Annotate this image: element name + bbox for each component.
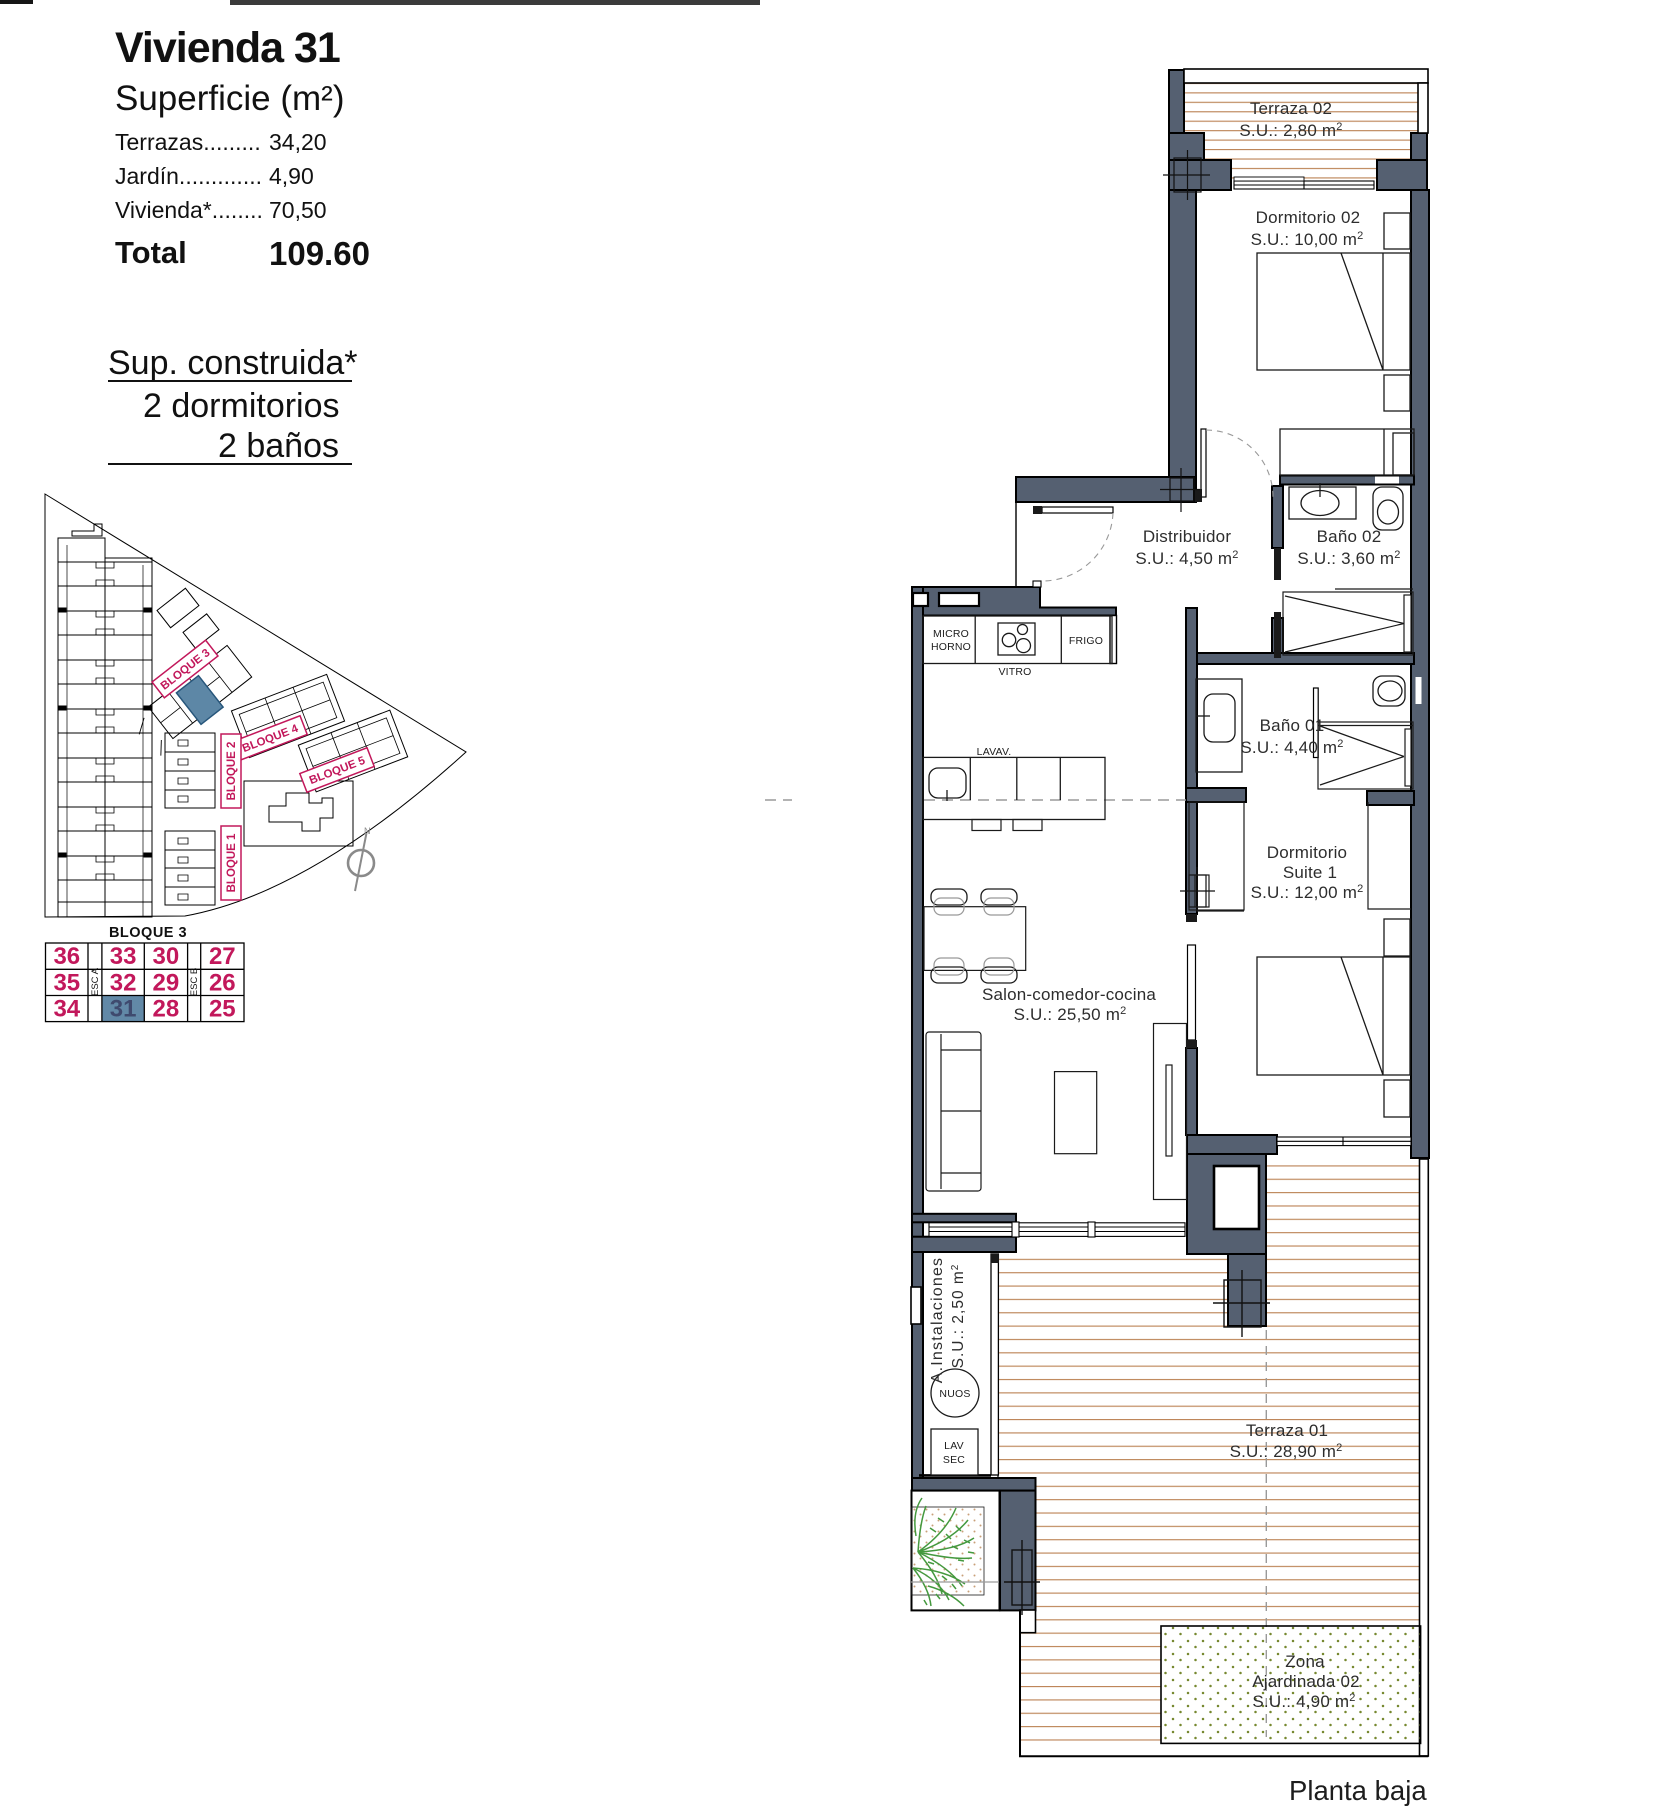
svg-text:Zona: Zona <box>1285 1652 1325 1671</box>
svg-text:Planta baja: Planta baja <box>1289 1775 1427 1806</box>
svg-text:BLOQUE 3: BLOQUE 3 <box>109 925 187 941</box>
svg-text:2 baños: 2 baños <box>218 427 339 465</box>
svg-text:SEC: SEC <box>943 1454 965 1466</box>
svg-text:Baño 02: Baño 02 <box>1317 527 1382 546</box>
svg-text:Distribuidor: Distribuidor <box>1143 527 1232 546</box>
svg-text:BLOQUE 1: BLOQUE 1 <box>226 833 238 892</box>
svg-text:Terrazas.........: Terrazas......... <box>115 129 261 155</box>
svg-text:HORNO: HORNO <box>931 641 971 653</box>
svg-text:NUOS: NUOS <box>939 1388 970 1400</box>
svg-text:70,50: 70,50 <box>269 197 327 223</box>
svg-text:109.60: 109.60 <box>269 235 370 272</box>
svg-text:33: 33 <box>110 943 137 970</box>
svg-text:Terraza 02: Terraza 02 <box>1250 99 1332 118</box>
svg-text:26: 26 <box>209 969 236 996</box>
svg-text:MICRO: MICRO <box>933 628 969 640</box>
svg-text:Baño 01: Baño 01 <box>1260 716 1325 735</box>
svg-text:BLOQUE 2: BLOQUE 2 <box>226 742 238 801</box>
svg-text:34,20: 34,20 <box>269 129 327 155</box>
svg-text:29: 29 <box>153 969 180 996</box>
svg-text:S.U.: 28,90 m2: S.U.: 28,90 m2 <box>1230 1442 1343 1461</box>
svg-text:36: 36 <box>53 943 80 970</box>
svg-text:LAVAV.: LAVAV. <box>977 746 1012 758</box>
svg-text:34: 34 <box>53 996 80 1023</box>
svg-text:32: 32 <box>110 969 137 996</box>
svg-text:30: 30 <box>153 943 180 970</box>
svg-text:S.U.: 25,50 m2: S.U.: 25,50 m2 <box>1014 1005 1127 1024</box>
svg-text:2 dormitorios: 2 dormitorios <box>143 387 340 425</box>
svg-text:28: 28 <box>153 996 180 1023</box>
svg-text:FRIGO: FRIGO <box>1069 635 1103 647</box>
svg-text:S.U.: 4,40 m2: S.U.: 4,40 m2 <box>1240 738 1343 757</box>
svg-text:VITRO: VITRO <box>998 666 1031 678</box>
svg-text:Vivienda*........: Vivienda*........ <box>115 197 263 223</box>
svg-text:S.U.: 2,80 m2: S.U.: 2,80 m2 <box>1239 121 1342 140</box>
svg-text:ESC A: ESC A <box>90 967 101 996</box>
svg-text:Dormitorio 02: Dormitorio 02 <box>1256 208 1361 227</box>
svg-text:S.U.: 2,50 m2: S.U.: 2,50 m2 <box>950 1264 967 1369</box>
svg-text:S.U.: 12,00 m2: S.U.: 12,00 m2 <box>1251 883 1364 902</box>
svg-text:LAV: LAV <box>944 1440 964 1452</box>
svg-text:Total: Total <box>115 235 187 270</box>
svg-text:Dormitorio: Dormitorio <box>1267 843 1347 862</box>
svg-text:N: N <box>364 826 371 836</box>
svg-text:A.Instalaciones: A.Instalaciones <box>929 1257 946 1384</box>
svg-text:Suite 1: Suite 1 <box>1283 863 1337 882</box>
svg-text:S.U.: 10,00 m2: S.U.: 10,00 m2 <box>1251 230 1364 249</box>
svg-text:Ajardinada 02: Ajardinada 02 <box>1252 1672 1360 1691</box>
svg-text:31: 31 <box>110 996 137 1023</box>
svg-text:27: 27 <box>209 943 236 970</box>
svg-text:4,90: 4,90 <box>269 163 314 189</box>
svg-text:35: 35 <box>53 969 80 996</box>
svg-text:Salon-comedor-cocina: Salon-comedor-cocina <box>982 985 1156 1004</box>
svg-text:S.U.: 4,50 m2: S.U.: 4,50 m2 <box>1135 549 1238 568</box>
svg-text:Terraza 01: Terraza 01 <box>1246 1421 1328 1440</box>
svg-text:Vivienda 31: Vivienda 31 <box>115 24 340 72</box>
svg-text:Jardín.............: Jardín............. <box>115 163 262 189</box>
svg-text:S.U.: 3,60 m2: S.U.: 3,60 m2 <box>1297 549 1400 568</box>
svg-text:S.U.: 4,90 m2: S.U.: 4,90 m2 <box>1252 1692 1355 1711</box>
svg-text:Superficie (m²): Superficie (m²) <box>115 79 344 118</box>
svg-text:25: 25 <box>209 996 236 1023</box>
svg-text:ESC B: ESC B <box>189 968 200 997</box>
svg-text:Sup. construida*: Sup. construida* <box>108 344 358 382</box>
